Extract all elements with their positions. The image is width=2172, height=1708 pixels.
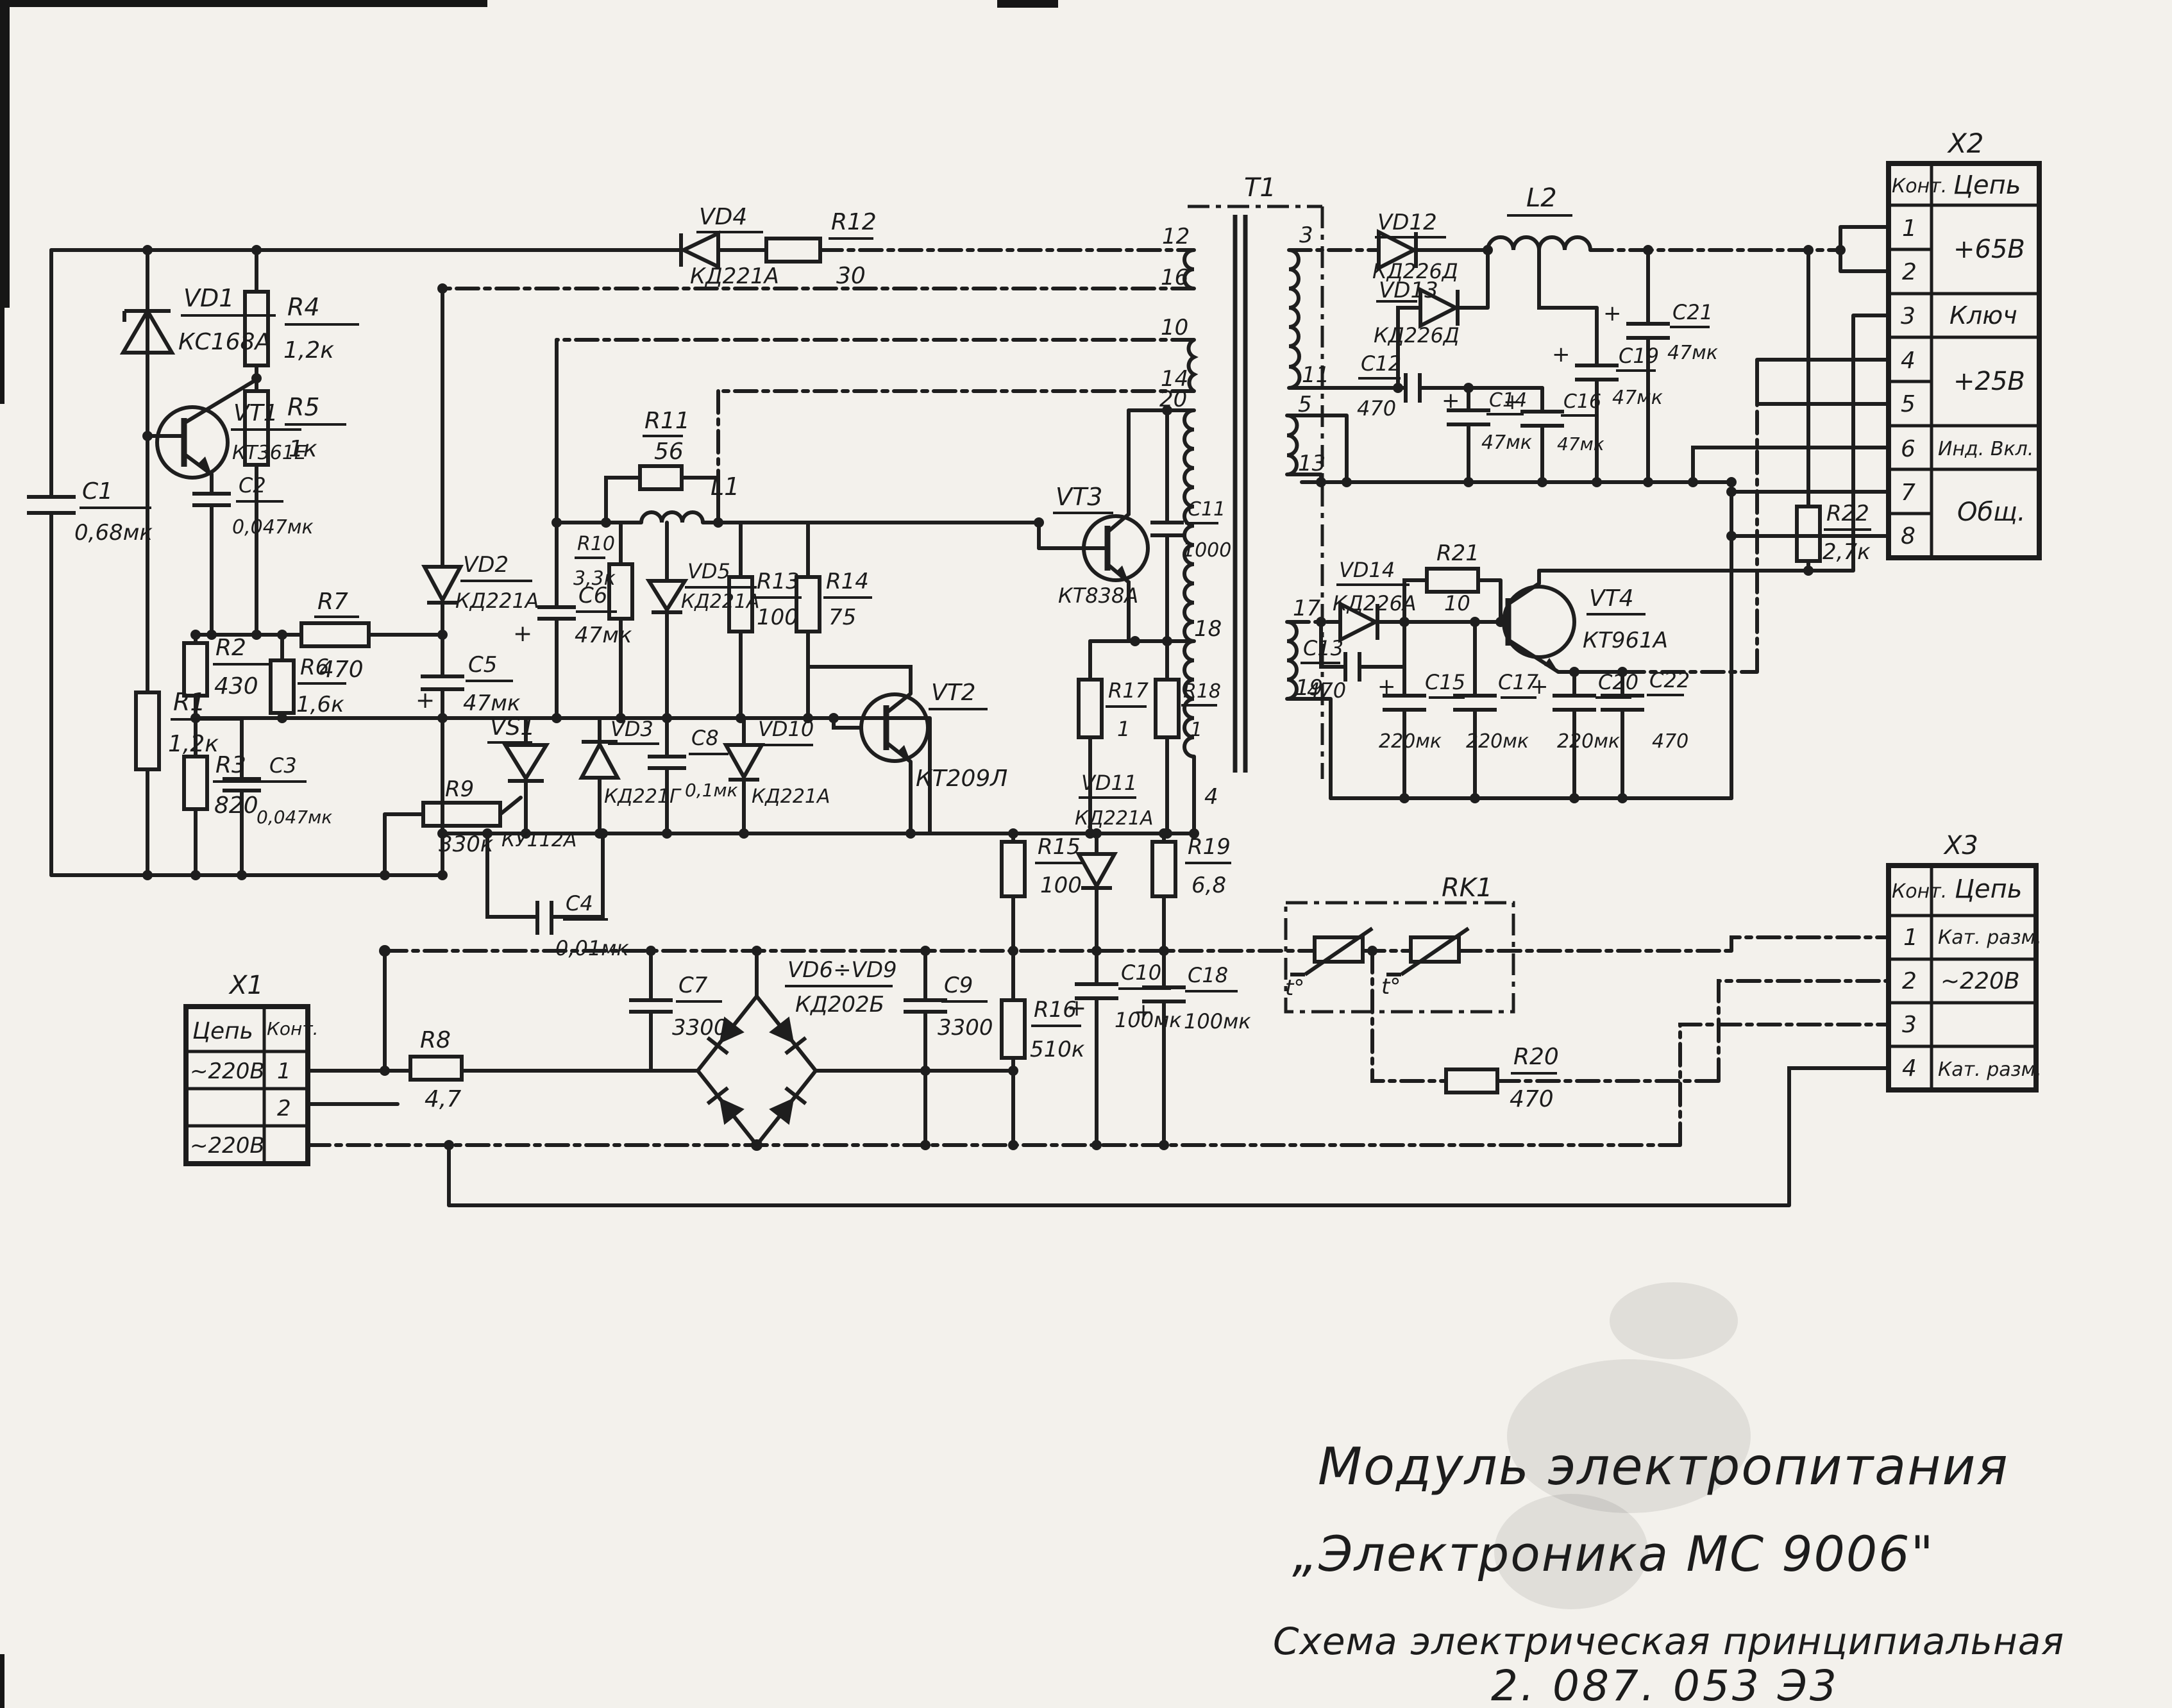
pin-13: 13 <box>1298 451 1326 476</box>
value-c19: 47мк <box>1612 387 1663 409</box>
plus-c6: + <box>513 621 532 647</box>
label-vt4: VT4 <box>1589 585 1634 612</box>
resistor-R6 <box>271 660 294 713</box>
capacitor-C8 <box>648 757 686 768</box>
label-r10: R10 <box>577 533 615 555</box>
x1-row-circuit: ~220В <box>190 1059 265 1084</box>
label-r8: R8 <box>420 1027 451 1053</box>
plus-c21: + <box>1603 301 1622 326</box>
x2-hdr-circuit: Цепь <box>1953 171 2021 200</box>
resistor-R20 <box>1446 1069 1497 1093</box>
label-r19: R19 <box>1188 834 1231 860</box>
plus-c16: + <box>1503 389 1522 415</box>
pin-12: 12 <box>1162 224 1190 249</box>
x2-circuit-25v: +25В <box>1953 367 2025 396</box>
x2-pin: 5 <box>1901 391 1915 417</box>
value-r7: 470 <box>319 657 364 683</box>
value-r16: 510к <box>1030 1037 1085 1062</box>
temp-icon: t° <box>1381 974 1401 1000</box>
capacitor-C13 <box>1345 652 1360 682</box>
label-r4: R4 <box>287 293 320 321</box>
label-r17: R17 <box>1108 678 1149 703</box>
value-c1: 0,68мк <box>74 520 153 546</box>
label-r22: R22 <box>1826 501 1869 526</box>
x2-circuit-key: Ключ <box>1949 301 2017 330</box>
label-vd4: VD4 <box>699 204 747 230</box>
capacitor-C20 <box>1553 696 1596 710</box>
connector-x1: X1 Цепь Конт. ~220В 1 2 ~220В <box>186 971 319 1164</box>
resistor-R22 <box>1797 507 1820 561</box>
capacitor-C7 <box>629 1000 673 1012</box>
pin-11: 11 <box>1302 362 1329 388</box>
resistor-R16 <box>1002 1000 1025 1058</box>
inductor-L2 <box>1488 237 1590 250</box>
label-c11: C11 <box>1188 498 1225 521</box>
label-vd13: VD13 <box>1379 278 1438 303</box>
value-c6: 47мк <box>575 623 632 648</box>
label-vd12: VD12 <box>1377 210 1437 235</box>
resistor-R21 <box>1427 569 1478 592</box>
value-r10: 3,3к <box>573 567 616 590</box>
label-c8: C8 <box>691 726 719 750</box>
value-vd1: КС168А <box>178 329 271 355</box>
value-r9: 330к <box>439 832 494 857</box>
plus-c18: + <box>1134 999 1153 1025</box>
inductor-L1 <box>641 512 703 523</box>
value-vd5: КД221А <box>681 590 760 613</box>
label-c15: C15 <box>1425 670 1465 694</box>
transistor-VT4 <box>1504 583 1574 672</box>
x3-hdr-pin: Конт. <box>1892 880 1947 903</box>
capacitor-C1 <box>27 497 76 513</box>
label-vt1: VT1 <box>233 400 278 426</box>
label-r5: R5 <box>287 393 320 421</box>
x3-pin: 2 <box>1902 968 1917 994</box>
value-c2: 0,047мк <box>232 516 314 539</box>
label-r18: R18 <box>1183 680 1221 703</box>
x1-row-pin: 1 <box>277 1059 291 1084</box>
title-line2: „Электроника МС 9006" <box>1292 1525 1935 1582</box>
label-rk1: RK1 <box>1442 873 1492 903</box>
label-c22: C22 <box>1649 668 1690 692</box>
label-vd11: VD11 <box>1081 771 1137 795</box>
x3-pin: 1 <box>1903 925 1918 951</box>
diode-VD10 <box>726 745 762 780</box>
value-vt2: КТ209Л <box>916 766 1007 792</box>
title-line1: Модуль электропитания <box>1318 1437 2009 1496</box>
label-r21: R21 <box>1436 540 1479 566</box>
value-c21: 47мк <box>1667 342 1718 364</box>
pin-4: 4 <box>1204 784 1218 810</box>
label-c10: C10 <box>1121 960 1161 985</box>
x1-hdr-circuit: Цепь <box>192 1018 253 1044</box>
value-vd14: КД226А <box>1333 591 1417 615</box>
label-c4: C4 <box>566 891 593 916</box>
resistor-R15 <box>1002 842 1025 896</box>
label-c1: C1 <box>82 478 113 505</box>
x2-pin: 1 <box>1902 215 1917 242</box>
value-vd10: КД221А <box>752 785 830 808</box>
x2-circuit-com: Общ. <box>1957 498 2026 527</box>
value-vd2: КД221А <box>455 589 539 613</box>
resistor-R17 <box>1079 680 1102 737</box>
label-vt3: VT3 <box>1056 483 1102 511</box>
plus-c20: + <box>1530 674 1549 699</box>
title-line4: 2. 087. 053 Э3 <box>1491 1661 1839 1708</box>
label-vt2: VT2 <box>931 680 976 706</box>
pin-3: 3 <box>1299 222 1313 248</box>
x2-pin: 3 <box>1901 303 1915 330</box>
x3-pin: 4 <box>1902 1055 1917 1082</box>
label-l1: L1 <box>711 473 739 501</box>
resistor-R11 <box>640 466 682 489</box>
value-c7: 3300 <box>672 1015 728 1041</box>
transistor-VT2 <box>861 694 928 762</box>
value-r11: 56 <box>654 439 684 465</box>
x2-pin: 7 <box>1901 480 1915 506</box>
value-r6: 1,6к <box>296 692 344 717</box>
label-c2: C2 <box>239 473 266 498</box>
x3-pin: 3 <box>1902 1012 1917 1038</box>
plus-c19: + <box>1552 342 1570 367</box>
capacitor-C4 <box>537 901 551 935</box>
label-vd1: VD1 <box>183 284 234 312</box>
label-c20: C20 <box>1598 670 1638 694</box>
label-vd3: VD3 <box>610 717 653 741</box>
resistor-R19 <box>1152 842 1175 896</box>
resistor-R1 <box>136 692 159 769</box>
capacitor-C9 <box>904 1000 947 1012</box>
schematic-canvas: C1 0,68мк VD1 КС168А R4 1,2к R5 1к VT1 К… <box>0 0 2172 1708</box>
resistor-R18 <box>1156 680 1179 737</box>
label-r13: R13 <box>757 569 800 594</box>
value-r18: 1 <box>1190 719 1202 741</box>
value-c20: 220мк <box>1557 730 1620 753</box>
diode-VD11 <box>1079 854 1115 888</box>
value-r8: 4,7 <box>425 1086 461 1112</box>
value-r1: 1,2к <box>168 731 219 757</box>
pin-20: 20 <box>1159 387 1187 412</box>
value-r12: 30 <box>836 263 866 289</box>
value-vd3: КД221Г <box>604 785 682 808</box>
label-r9: R9 <box>445 776 474 802</box>
pin-10: 10 <box>1161 315 1188 340</box>
x3-circuit: ~220В <box>1940 968 2020 994</box>
value-r21: 10 <box>1444 591 1470 615</box>
capacitor-C6 <box>537 607 576 619</box>
value-vd11: КД221А <box>1075 807 1154 830</box>
value-vt1: КТ361Е <box>232 442 307 464</box>
label-c19: C19 <box>1619 344 1659 368</box>
value-r17: 1 <box>1117 717 1130 741</box>
value-c9: 3300 <box>938 1015 993 1041</box>
title-line3: Схема электрическая принципиальная <box>1273 1620 2064 1663</box>
x2-hdr-pin: Конт. <box>1892 175 1947 197</box>
label-vd10: VD10 <box>758 717 814 741</box>
component-labels: C1 0,68мк VD1 КС168А R4 1,2к R5 1к VT1 К… <box>74 173 1871 1112</box>
capacitor-C11 <box>1150 523 1184 535</box>
label-r14: R14 <box>826 569 869 594</box>
temp-icon: t° <box>1285 975 1304 1001</box>
x1-row-circuit: ~220В <box>190 1133 265 1159</box>
value-c22: 470 <box>1652 730 1688 753</box>
label-c3: C3 <box>269 753 297 778</box>
diode-VD4 <box>681 233 718 267</box>
value-c16: 47мк <box>1557 433 1604 455</box>
diode-VD3 <box>582 742 618 778</box>
value-vt4: КТ961А <box>1583 628 1668 653</box>
capacitor-C21 <box>1626 324 1670 338</box>
capacitor-C19 <box>1575 365 1619 380</box>
label-r16: R16 <box>1034 997 1077 1023</box>
resistor-R9 <box>423 803 500 826</box>
label-r20: R20 <box>1513 1044 1559 1070</box>
value-vd69: КД202Б <box>795 992 884 1017</box>
x2-pin: 8 <box>1901 523 1915 549</box>
label-c5: C5 <box>468 652 497 678</box>
plus-c15: + <box>1377 674 1396 699</box>
value-c14: 47мк <box>1481 431 1532 454</box>
x1-title: X1 <box>228 971 264 1000</box>
value-c8: 0,1мк <box>685 780 738 801</box>
label-vd69: VD6÷VD9 <box>787 957 897 983</box>
label-c7: C7 <box>678 973 708 998</box>
label-vd5: VD5 <box>687 559 730 583</box>
value-r13: 100 <box>757 605 798 630</box>
value-vd4: КД221А <box>690 264 779 289</box>
value-c17: 220мк <box>1466 730 1529 753</box>
label-c21: C21 <box>1672 300 1713 324</box>
capacitor-C16 <box>1520 412 1564 426</box>
value-r3: 820 <box>214 792 258 819</box>
label-vd2: VD2 <box>463 552 509 578</box>
x2-title: X2 <box>1947 128 1984 159</box>
resistor-R8 <box>410 1057 462 1080</box>
value-c18: 100мк <box>1184 1009 1251 1034</box>
label-c13: C13 <box>1303 636 1343 660</box>
capacitor-C12 <box>1406 373 1420 403</box>
x2-circuit-65v: +65В <box>1953 235 2025 264</box>
resistor-R12 <box>766 239 820 262</box>
label-c12: C12 <box>1361 351 1401 376</box>
label-r1: R1 <box>173 688 206 716</box>
value-r15: 100 <box>1040 873 1082 898</box>
pin-18: 18 <box>1194 616 1222 642</box>
value-vd13: КД226Д <box>1374 323 1460 347</box>
label-c18: C18 <box>1188 963 1228 987</box>
capacitor-C2 <box>192 494 231 505</box>
label-c9: C9 <box>944 973 973 998</box>
label-vs1: VS1 <box>490 714 535 741</box>
value-c4: 0,01мк <box>555 936 629 960</box>
schematic-page: C1 0,68мк VD1 КС168А R4 1,2к R5 1к VT1 К… <box>0 0 2172 1708</box>
label-r7: R7 <box>317 589 348 615</box>
x3-hdr-circuit: Цепь <box>1955 875 2022 904</box>
x1-hdr-pin: Конт. <box>267 1018 319 1039</box>
value-r19: 6,8 <box>1191 873 1226 898</box>
x2-pin: 6 <box>1901 436 1915 462</box>
value-r14: 75 <box>829 605 856 630</box>
value-vt3: КТ838А <box>1058 583 1138 608</box>
value-c5: 47мк <box>463 691 521 716</box>
label-vd14: VD14 <box>1339 558 1395 582</box>
x2-pin: 2 <box>1902 259 1917 285</box>
x1-row-pin: 2 <box>277 1096 291 1121</box>
value-c11: 1000 <box>1183 539 1231 562</box>
connector-x2: X2 Конт. Цепь 1 2 3 4 5 6 7 8 +65В Ключ … <box>1889 128 2039 558</box>
plus-c14: + <box>1442 388 1460 414</box>
value-r2: 430 <box>214 673 258 699</box>
x3-title: X3 <box>1943 831 1978 860</box>
value-r20: 470 <box>1510 1086 1554 1112</box>
label-c16: C16 <box>1563 390 1601 413</box>
label-r12: R12 <box>831 209 877 235</box>
value-r22: 2,7к <box>1823 539 1871 565</box>
pin-19: 19 <box>1295 675 1323 701</box>
value-vs1: КУ112А <box>501 829 577 851</box>
x2-circuit-ind: Инд. Вкл. <box>1938 438 2033 460</box>
plus-c5: + <box>416 687 435 714</box>
label-r11: R11 <box>644 408 690 434</box>
label-t1: Т1 <box>1244 173 1276 203</box>
value-c12: 470 <box>1357 396 1396 421</box>
label-l2: L2 <box>1526 183 1557 213</box>
pin-17: 17 <box>1293 596 1321 621</box>
label-r2: R2 <box>215 635 246 661</box>
x3-circuit: Кат. разм. <box>1938 1059 2042 1081</box>
label-r3: R3 <box>215 752 246 778</box>
resistor-R14 <box>796 577 820 632</box>
pin-16: 16 <box>1161 265 1188 290</box>
connector-x3: X3 Конт. Цепь 1 Кат. разм. 2 ~220В 3 4 К… <box>1889 831 2042 1090</box>
value-r4: 1,2к <box>283 337 334 364</box>
x3-circuit: Кат. разм. <box>1938 926 2042 949</box>
thyristor-VS1 <box>505 745 546 781</box>
resistor-R7 <box>301 623 369 646</box>
pin-5: 5 <box>1298 392 1312 417</box>
label-r15: R15 <box>1038 834 1081 860</box>
title-block: Модуль электропитания „Электроника МС 90… <box>1273 1437 2064 1708</box>
value-c3: 0,047мк <box>257 807 332 828</box>
diode-VD5 <box>649 581 685 612</box>
x2-pin: 4 <box>1901 347 1915 374</box>
value-c15: 220мк <box>1379 730 1442 753</box>
resistor-R3 <box>184 757 207 809</box>
